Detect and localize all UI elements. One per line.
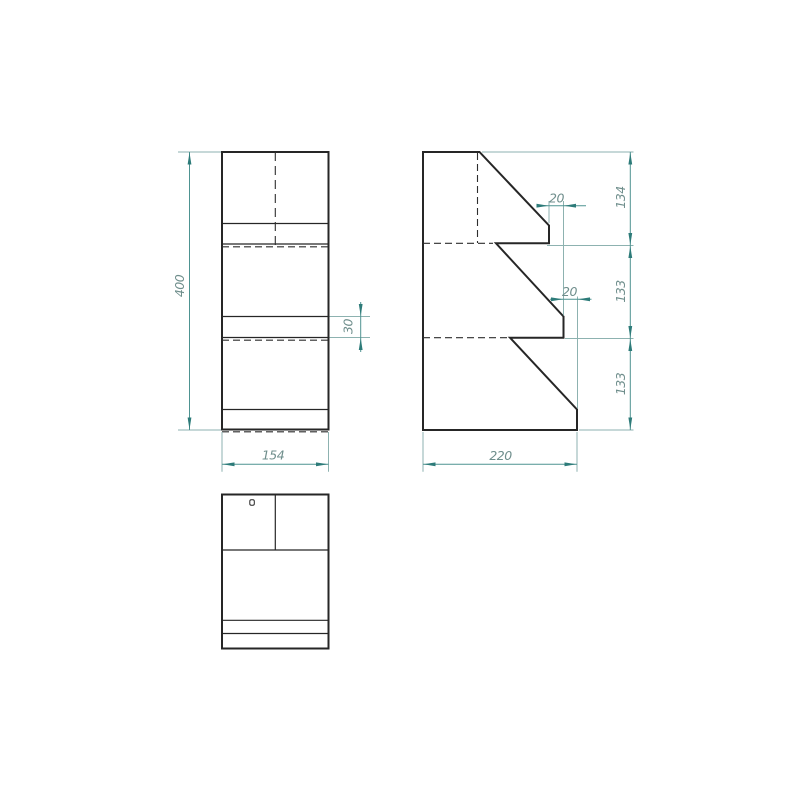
dim-step-offset-2: 20 (550, 284, 592, 409)
dim-label-133-bottom: 133 (613, 372, 628, 395)
arrow-right-icon (537, 204, 549, 208)
arrow-up-icon (628, 246, 632, 258)
dim-label-20-upper: 20 (549, 191, 564, 206)
dim-label-154: 154 (262, 448, 285, 463)
arrow-left-icon (564, 204, 576, 208)
arrow-right-icon (316, 462, 328, 466)
arrow-down-icon (628, 326, 632, 338)
arrow-up-icon (628, 339, 632, 351)
dim-shelf-thickness: 30 (330, 302, 371, 352)
hole-mark (250, 500, 255, 506)
dim-label-134: 134 (613, 186, 628, 209)
dim-label-133-middle: 133 (613, 280, 628, 303)
arrow-left-icon (578, 297, 590, 301)
arrow-up-icon (359, 338, 363, 350)
arrow-up-icon (628, 153, 632, 165)
dim-front-height: 400 (172, 152, 221, 430)
technical-drawing: 400 154 30 20 (0, 0, 800, 800)
drawing-canvas: 400 154 30 20 (0, 0, 800, 800)
arrow-down-icon (628, 233, 632, 245)
dim-label-20-lower: 20 (562, 284, 577, 299)
dim-label-220: 220 (489, 448, 512, 463)
top-view (222, 495, 329, 649)
dim-label-30: 30 (341, 319, 356, 334)
arrow-up-icon (188, 153, 192, 165)
front-view-outline (222, 152, 329, 430)
dim-label-400: 400 (172, 274, 187, 297)
arrow-down-icon (628, 418, 632, 430)
arrow-down-icon (188, 418, 192, 430)
dim-side-depth: 220 (423, 432, 577, 472)
dim-front-width: 154 (222, 432, 329, 472)
arrow-left-icon (424, 462, 436, 466)
arrow-left-icon (223, 462, 235, 466)
arrow-down-icon (359, 304, 363, 316)
front-view (222, 152, 329, 432)
arrow-right-icon (565, 462, 577, 466)
